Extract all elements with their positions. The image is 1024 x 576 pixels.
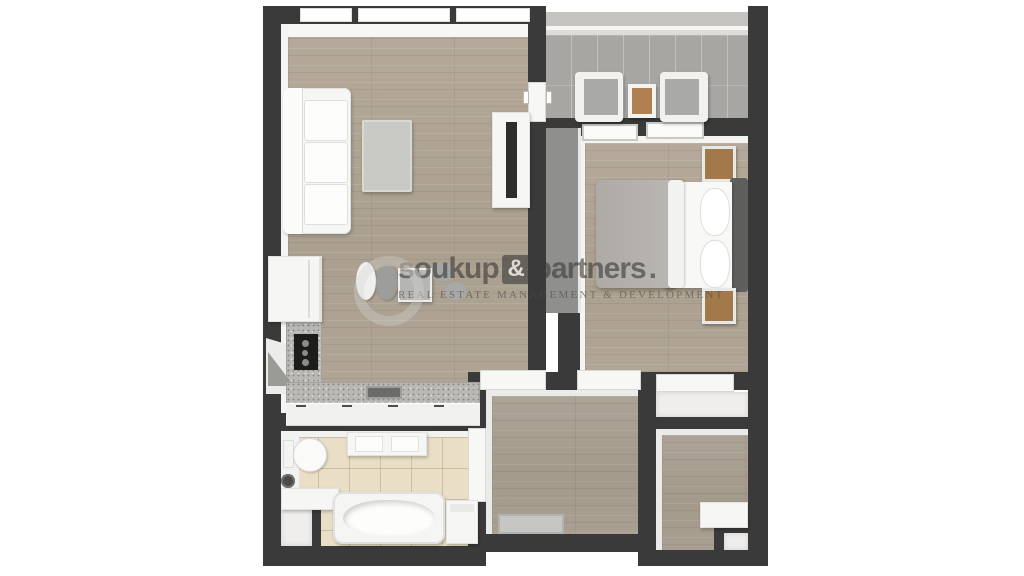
- floor-drain: [281, 474, 295, 488]
- bed-pillow-1: [700, 188, 730, 236]
- cooktop: [294, 334, 318, 370]
- balcony-door-living: [528, 82, 546, 122]
- dining-chair-4: [444, 282, 466, 300]
- bathroom-vanity: [281, 488, 339, 510]
- wall-balcony-top: [542, 12, 748, 30]
- bedroom-window-2: [646, 122, 704, 139]
- wall-closet-hallway: [656, 417, 750, 429]
- wardrobe: [546, 128, 581, 313]
- storage-closet-floor: [724, 533, 748, 550]
- balcony-side-table: [628, 84, 656, 118]
- walk-in-closet-floor: [656, 392, 748, 417]
- living-window-1: [300, 8, 352, 22]
- dining-chair-3: [432, 262, 454, 282]
- wall-storage-v: [714, 524, 724, 566]
- toilet: [283, 438, 325, 470]
- wall-right-outer: [748, 6, 768, 566]
- side-table-top: [632, 88, 652, 114]
- washing-machine: [446, 500, 478, 544]
- washing-machine-lid: [450, 504, 474, 512]
- sofa-back: [283, 88, 303, 234]
- burner-3: [302, 359, 309, 366]
- bathroom-closet-floor: [281, 507, 312, 546]
- bed-blanket: [596, 180, 674, 288]
- nightstand-top: [702, 146, 736, 182]
- balcony-armchair-left: [575, 72, 623, 122]
- kitchen-sink: [366, 386, 402, 399]
- armchair-cushion: [665, 79, 699, 115]
- fridge-divider: [308, 260, 310, 318]
- dining-table: [398, 268, 432, 302]
- balcony-door-handle-1: [524, 92, 528, 103]
- armchair-cushion: [584, 79, 618, 115]
- burner-1: [302, 340, 309, 347]
- sofa-cushion-2: [304, 142, 348, 183]
- hallway-bench: [700, 502, 748, 528]
- sofa-cushion-3: [304, 184, 348, 225]
- bed-pillow-2: [700, 240, 730, 288]
- towel-stack-1: [355, 436, 383, 452]
- bathroom-shelf: [347, 432, 427, 456]
- door-living-hall: [480, 370, 546, 390]
- wall-bottom-bathroom: [263, 546, 486, 566]
- bathtub-basin: [343, 500, 435, 536]
- sofa: [283, 88, 351, 234]
- floor-plan: soukup & partners . REAL ESTATE MANAGEME…: [0, 0, 1024, 576]
- bedroom-window-1: [582, 124, 638, 141]
- kitchen-cabinet-handles: [296, 405, 472, 407]
- living-window-3: [456, 8, 530, 22]
- door-bedroom-closet: [656, 374, 734, 392]
- dining-chair-2: [376, 264, 398, 300]
- toilet-bowl: [293, 438, 327, 472]
- burner-2: [302, 350, 308, 356]
- bed-sheet-fold: [668, 180, 684, 288]
- bed-headboard: [730, 178, 748, 292]
- wall-bottom-hall: [468, 534, 656, 552]
- bathtub: [333, 492, 445, 544]
- balcony-armchair-right: [660, 72, 708, 122]
- doormat: [498, 514, 564, 534]
- tv: [506, 122, 517, 198]
- wall-bottom-right: [638, 550, 768, 566]
- towel-stack-2: [391, 436, 419, 452]
- living-window-sill: [288, 24, 528, 37]
- balcony-door-handle-2: [547, 92, 551, 103]
- fridge: [268, 256, 322, 322]
- door-bathroom: [468, 428, 486, 502]
- sofa-cushion-1: [304, 100, 348, 141]
- living-window-2: [358, 8, 450, 22]
- wall-living-right: [528, 6, 546, 390]
- nightstand-bottom: [702, 288, 736, 324]
- dining-chair-1: [356, 262, 376, 300]
- door-bedroom-hall: [577, 370, 641, 390]
- coffee-table: [362, 120, 412, 192]
